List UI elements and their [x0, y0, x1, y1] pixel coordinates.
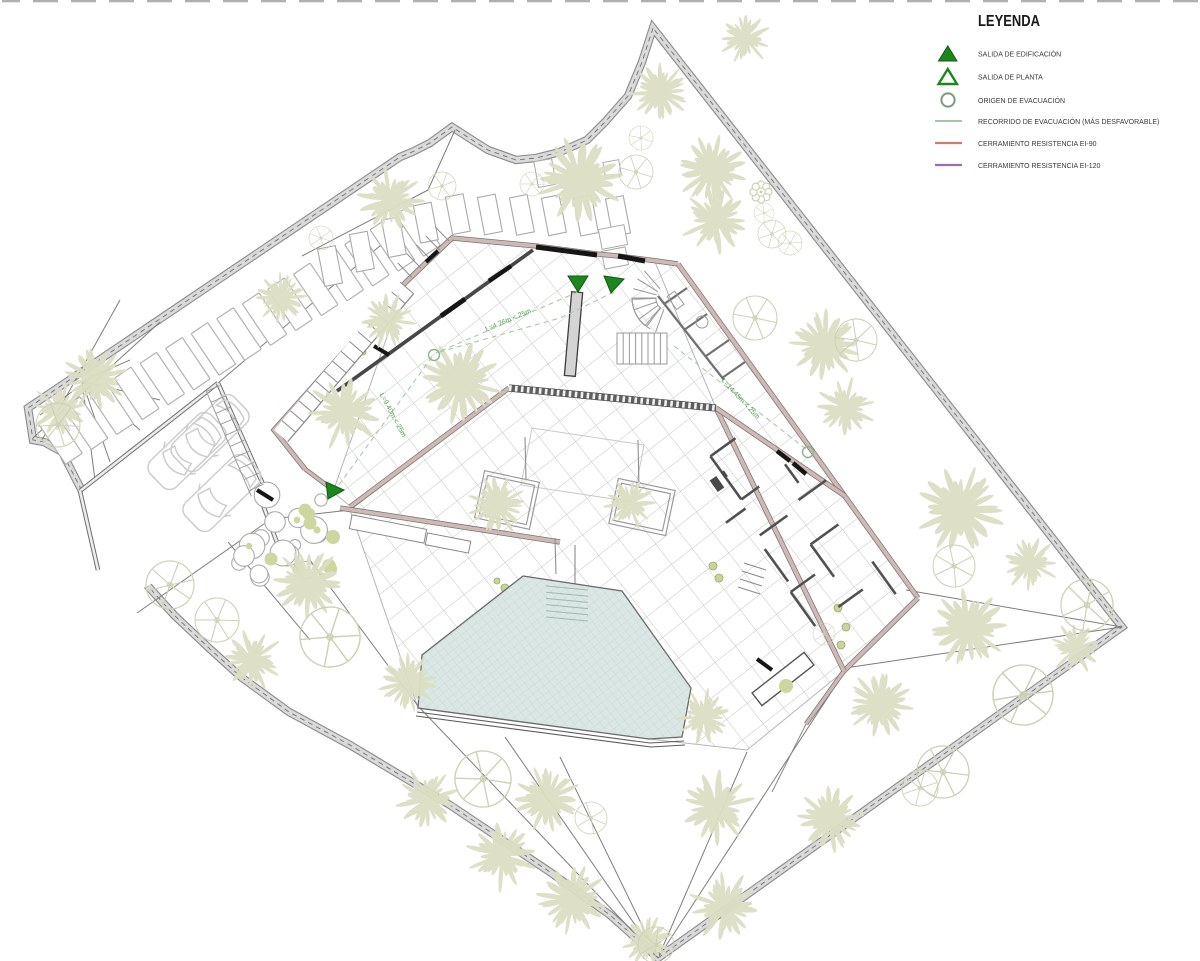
svg-text:RECORRIDO DE EVACUACIÓN (MÁS D: RECORRIDO DE EVACUACIÓN (MÁS DESFAVORABL…: [978, 117, 1159, 126]
svg-text:ORIGEN DE EVACUACIÓN: ORIGEN DE EVACUACIÓN: [978, 96, 1065, 105]
svg-text:SALIDA DE PLANTA: SALIDA DE PLANTA: [978, 75, 1043, 82]
svg-text:LEYENDA: LEYENDA: [978, 13, 1040, 30]
svg-text:SALIDA DE EDIFICACIÓN: SALIDA DE EDIFICACIÓN: [978, 50, 1061, 59]
svg-text:CERRAMIENTO RESISTENCIA EI-120: CERRAMIENTO RESISTENCIA EI-120: [978, 163, 1101, 170]
svg-text:CERRAMIENTO RESISTENCIA EI-90: CERRAMIENTO RESISTENCIA EI-90: [978, 141, 1097, 148]
